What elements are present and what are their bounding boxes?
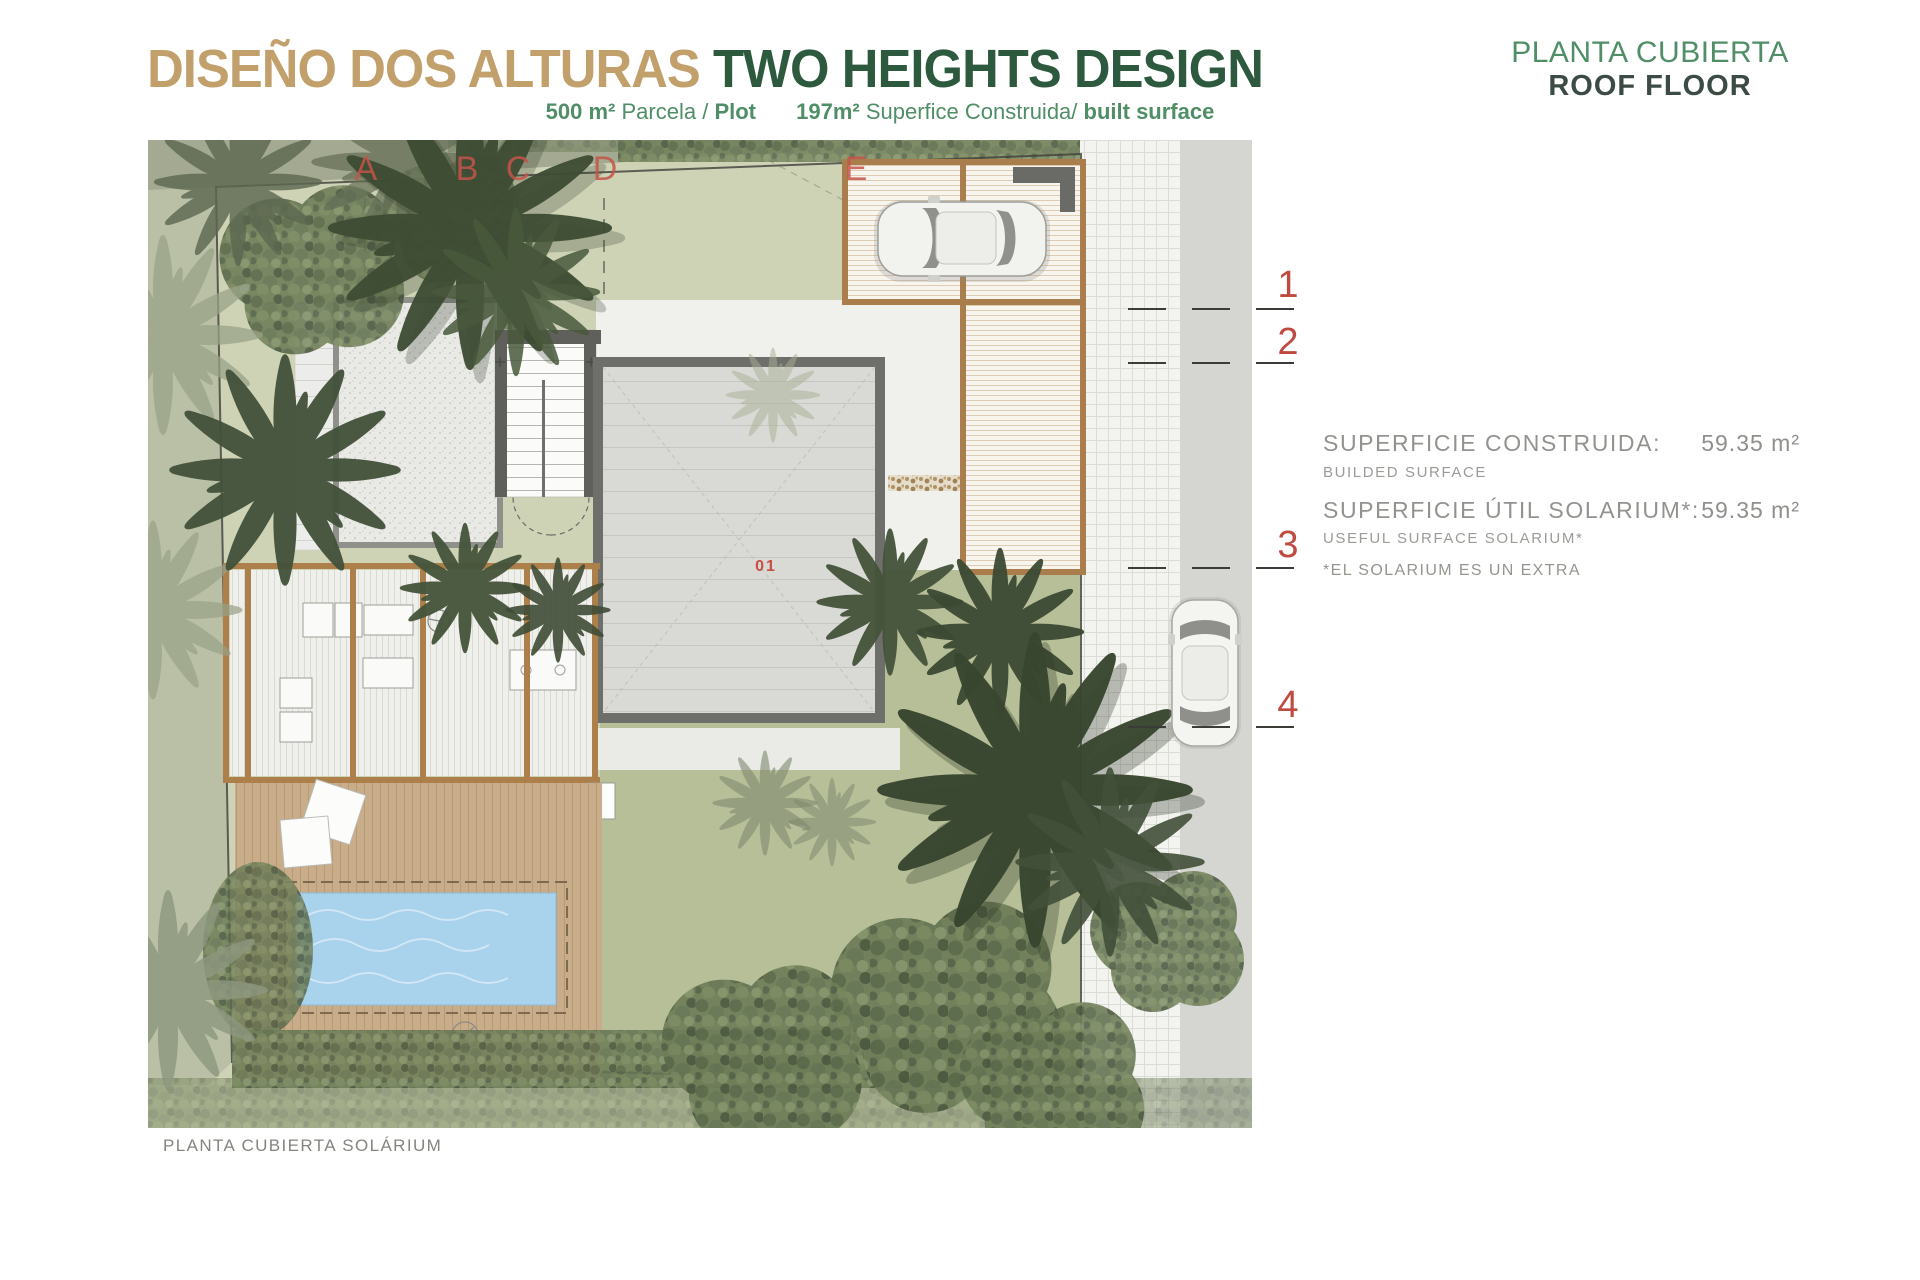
swimming-pool <box>296 893 556 1005</box>
built-surface-sublabel: BUILDED SURFACE <box>1323 464 1487 481</box>
built-area-label: Superfice Construida/ <box>866 99 1078 124</box>
plot-area-value: 500 m² <box>546 99 616 124</box>
grid-number-4: 4 <box>1266 684 1310 727</box>
built-surface-value: 59.35 m² <box>1640 430 1800 457</box>
grid-number-1: 1 <box>1266 264 1310 307</box>
grid-number-2: 2 <box>1266 321 1310 364</box>
grid-letter-e: E <box>838 150 874 189</box>
solarium-extra-note: *EL SOLARIUM ES UN EXTRA <box>1323 562 1581 580</box>
grid-tick-line-4 <box>1128 726 1315 728</box>
page-title: DISEÑO DOS ALTURASTWO HEIGHTS DESIGN <box>136 38 1273 100</box>
car-carport <box>874 196 1050 282</box>
grid-letter-a: A <box>348 150 384 189</box>
rear-path <box>598 728 900 770</box>
plot-area-label: Parcela / <box>621 99 708 124</box>
solarium-surface-value: 59.35 m² <box>1640 497 1800 524</box>
grid-number-3: 3 <box>1266 524 1310 567</box>
grid-tick-line-3 <box>1128 567 1315 569</box>
grid-letter-b: B <box>449 150 485 189</box>
plot-area-label-en: Plot <box>714 99 756 124</box>
roof-number-label: 01 <box>744 558 788 576</box>
sheet-title: PLANTA CUBIERTA ROOF FLOOR <box>1460 36 1840 102</box>
site-plan-drawing <box>148 140 1252 1128</box>
grid-tick-line-1 <box>1128 308 1315 310</box>
plot-surface-subtitle: 500 m² Parcela / Plot 197m² Superfice Co… <box>420 99 1340 125</box>
title-spanish: DISEÑO DOS ALTURAS <box>147 39 700 99</box>
plan-caption: PLANTA CUBIERTA SOLÁRIUM <box>163 1136 442 1156</box>
sheet-title-spanish: PLANTA CUBIERTA <box>1460 36 1840 70</box>
sheet-title-english: ROOF FLOOR <box>1460 70 1840 102</box>
grid-letter-c: C <box>500 150 536 189</box>
solarium-surface-sublabel: USEFUL SURFACE SOLARIUM* <box>1323 530 1583 547</box>
built-area-label-en: built surface <box>1084 99 1215 124</box>
built-area-value: 197m² <box>796 99 860 124</box>
grid-letter-d: D <box>587 150 623 189</box>
plan-sheet: DISEÑO DOS ALTURASTWO HEIGHTS DESIGN 500… <box>0 0 1920 1280</box>
built-surface-label: SUPERFICIE CONSTRUIDA: <box>1323 430 1661 457</box>
grid-tick-line-2 <box>1128 362 1315 364</box>
title-english: TWO HEIGHTS DESIGN <box>713 39 1263 99</box>
